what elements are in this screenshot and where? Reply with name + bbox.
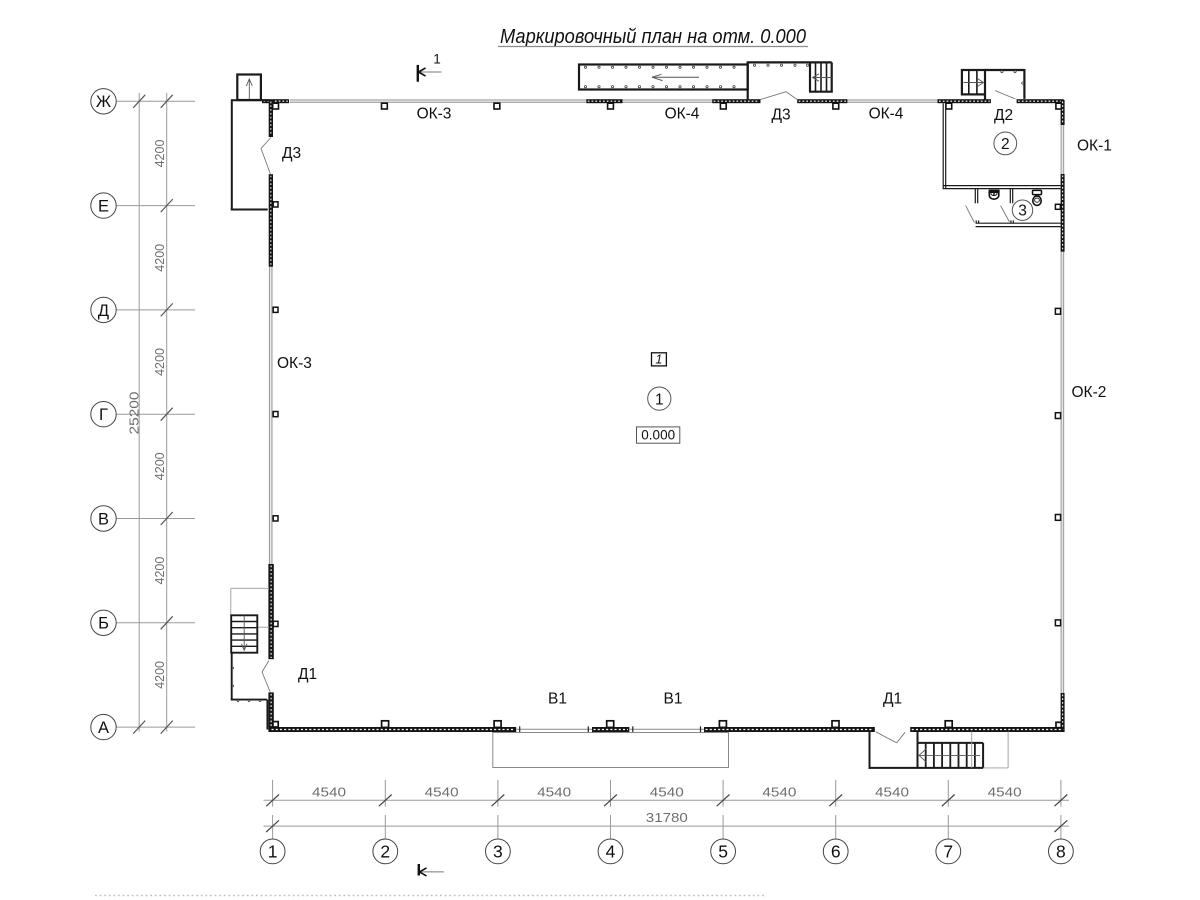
svg-text:4540: 4540 xyxy=(650,785,684,799)
svg-text:Е: Е xyxy=(98,198,109,216)
svg-text:ОК-3: ОК-3 xyxy=(277,355,312,372)
svg-text:Ж: Ж xyxy=(96,93,112,111)
svg-text:ОК-1: ОК-1 xyxy=(1077,138,1112,155)
svg-text:4: 4 xyxy=(606,842,616,862)
svg-text:4540: 4540 xyxy=(762,785,796,799)
svg-text:3: 3 xyxy=(1018,203,1027,220)
svg-text:Б: Б xyxy=(98,615,109,633)
svg-text:4200: 4200 xyxy=(153,244,167,272)
svg-text:4540: 4540 xyxy=(988,785,1022,799)
svg-text:В1: В1 xyxy=(664,690,683,707)
svg-text:Д1: Д1 xyxy=(883,690,902,707)
svg-text:Д2: Д2 xyxy=(994,107,1013,124)
svg-text:4540: 4540 xyxy=(537,785,571,799)
svg-text:31780: 31780 xyxy=(646,811,688,825)
svg-text:ОК-3: ОК-3 xyxy=(417,106,452,123)
svg-text:Д3: Д3 xyxy=(282,145,301,162)
svg-text:5: 5 xyxy=(718,842,728,862)
svg-text:А: А xyxy=(98,719,109,737)
svg-text:Д3: Д3 xyxy=(772,107,791,124)
svg-text:1: 1 xyxy=(655,391,664,408)
svg-text:8: 8 xyxy=(1056,842,1066,862)
svg-text:2: 2 xyxy=(380,842,390,862)
svg-text:В: В xyxy=(98,510,109,528)
svg-text:1: 1 xyxy=(655,352,662,366)
svg-text:2: 2 xyxy=(1001,136,1010,153)
svg-text:Д1: Д1 xyxy=(298,666,317,683)
svg-text:ОК-4: ОК-4 xyxy=(869,106,904,123)
svg-text:1: 1 xyxy=(268,842,278,862)
svg-text:4540: 4540 xyxy=(875,785,909,799)
svg-text:3: 3 xyxy=(493,842,503,862)
svg-text:4200: 4200 xyxy=(153,348,167,376)
svg-text:4200: 4200 xyxy=(153,452,167,480)
svg-text:4200: 4200 xyxy=(153,661,167,689)
svg-text:25200: 25200 xyxy=(128,391,142,434)
svg-text:1: 1 xyxy=(433,52,441,67)
svg-text:Маркировочный план на отм. 0.0: Маркировочный план на отм. 0.000 xyxy=(500,26,806,48)
svg-text:4200: 4200 xyxy=(153,140,167,168)
svg-text:4200: 4200 xyxy=(153,557,167,585)
svg-text:ОК-2: ОК-2 xyxy=(1072,384,1107,401)
svg-text:0.000: 0.000 xyxy=(641,428,675,443)
svg-text:В1: В1 xyxy=(548,690,567,707)
svg-text:Г: Г xyxy=(99,406,108,424)
svg-text:4540: 4540 xyxy=(425,785,459,799)
svg-text:4540: 4540 xyxy=(312,785,346,799)
svg-text:ОК-4: ОК-4 xyxy=(665,106,700,123)
svg-text:Д: Д xyxy=(98,302,109,320)
svg-text:7: 7 xyxy=(943,842,953,862)
svg-text:6: 6 xyxy=(831,842,841,862)
